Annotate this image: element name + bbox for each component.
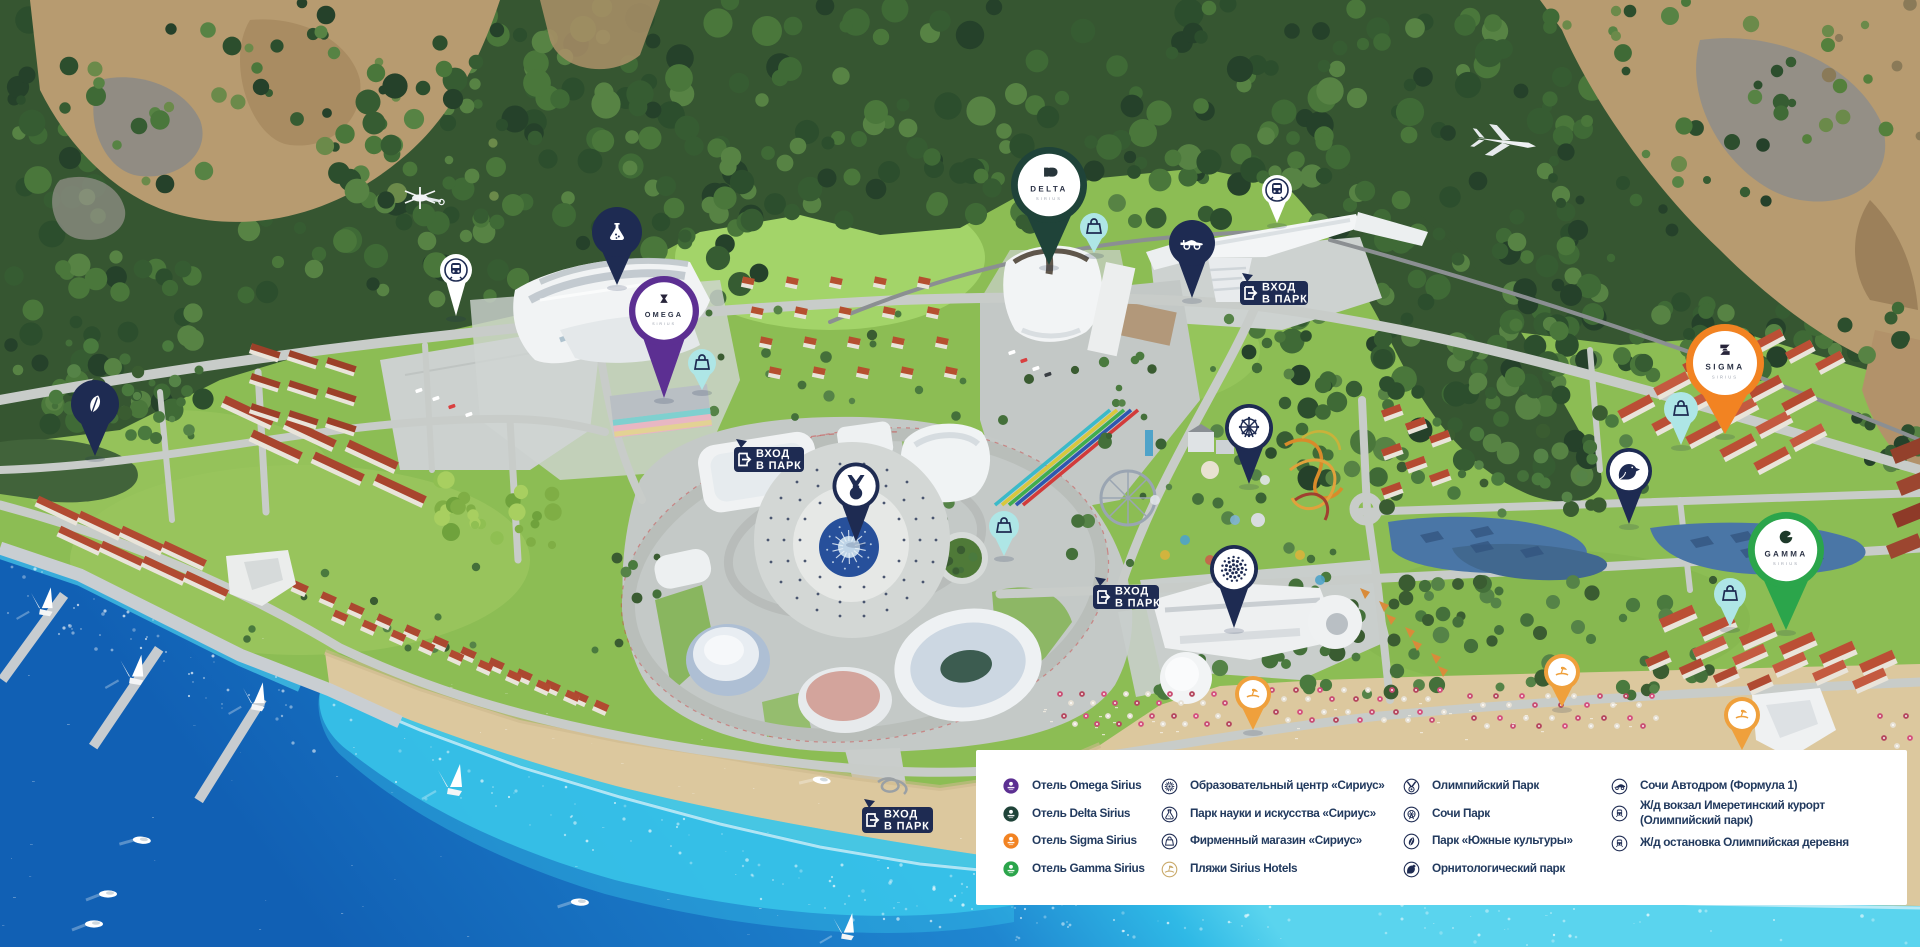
svg-text:SIGMA: SIGMA <box>1705 363 1744 372</box>
svg-text:OMEGA: OMEGA <box>645 310 684 319</box>
svg-text:DELTA: DELTA <box>1030 185 1067 194</box>
svg-text:В ПАРК: В ПАРК <box>756 460 802 472</box>
svg-text:GAMMA: GAMMA <box>1764 550 1807 559</box>
svg-text:SIRIUS: SIRIUS <box>1036 196 1062 201</box>
svg-text:ВХОД: ВХОД <box>1262 282 1296 294</box>
svg-text:В ПАРК: В ПАРК <box>884 821 930 833</box>
svg-text:SIRIUS: SIRIUS <box>652 322 676 326</box>
svg-text:SIRIUS: SIRIUS <box>1712 375 1738 380</box>
svg-text:ВХОД: ВХОД <box>1115 586 1149 598</box>
svg-text:ВХОД: ВХОД <box>756 448 790 460</box>
svg-text:В ПАРК: В ПАРК <box>1115 598 1161 610</box>
svg-text:ВХОД: ВХОД <box>884 809 918 821</box>
svg-text:SIRIUS: SIRIUS <box>1773 561 1799 566</box>
svg-text:В ПАРК: В ПАРК <box>1262 294 1308 306</box>
